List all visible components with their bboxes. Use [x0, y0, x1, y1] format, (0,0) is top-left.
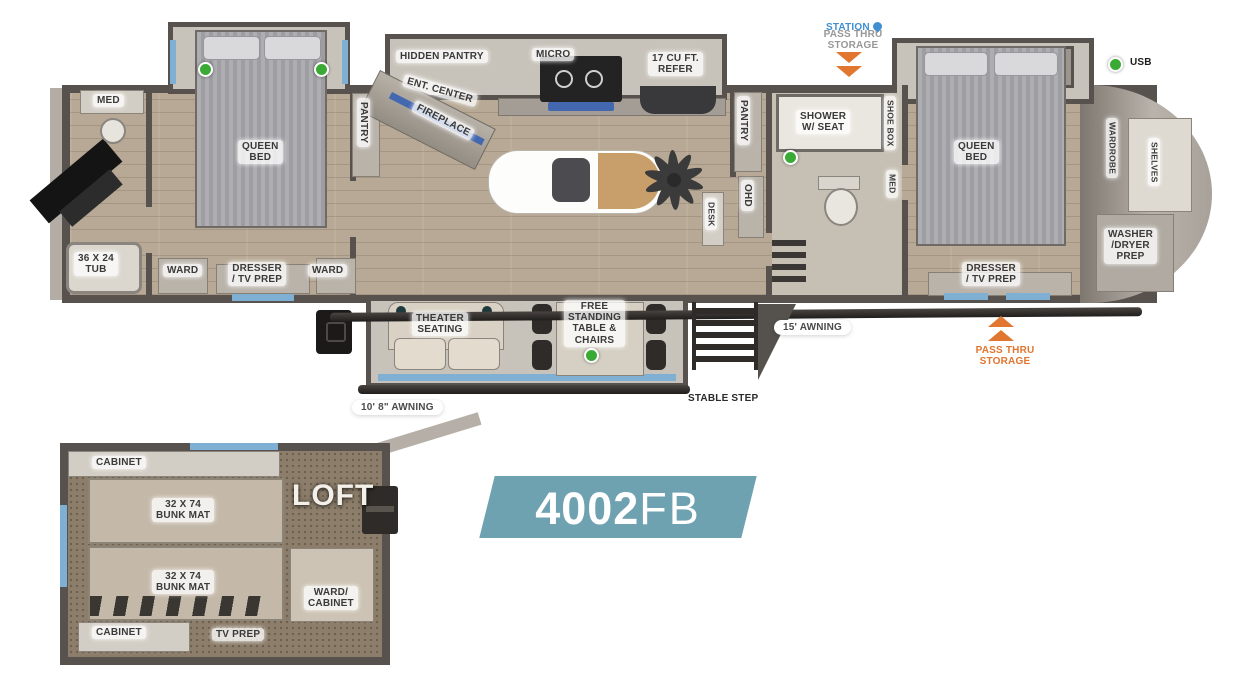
loft-stair-hatch: [90, 596, 262, 616]
toilet-bowl: [824, 188, 858, 226]
label-main-awning: 15' AWNING: [774, 320, 851, 335]
label-rear-pantry: PANTRY: [357, 98, 370, 147]
label-washer-dryer: WASHER /DRYER PREP: [1104, 228, 1157, 264]
bedroom-step-2: [772, 252, 806, 258]
range-cooktop: [540, 56, 622, 102]
pass-thru-down-chevron-2: [836, 66, 862, 77]
step-skirt: [758, 304, 796, 380]
theater-cushion-right: [448, 338, 500, 370]
dining-chair-4: [646, 340, 666, 370]
label-usb: USB: [1126, 56, 1156, 69]
model-number: 4002: [535, 483, 639, 535]
label-rear-ward-right: WARD: [308, 264, 347, 277]
label-pass-thru-right: PASS THRU STORAGE: [956, 344, 1054, 368]
wall-rearbath-lower: [146, 253, 152, 303]
rear-bed-pillow-left: [203, 36, 260, 60]
pass-thru-down-chevron-1: [836, 52, 862, 63]
pass-thru-up-chevron-1: [988, 316, 1014, 327]
rear-awning-bar: [358, 385, 690, 394]
loft-ward-cabinet-box: [290, 548, 374, 622]
island-sink-fixture: [552, 158, 590, 202]
model-badge-text: 4002FB: [487, 478, 749, 540]
shower-entry-light: [783, 150, 798, 165]
label-bunk-bottom: 32 X 74 BUNK MAT: [152, 570, 214, 594]
label-rear-queen: QUEEN BED: [238, 140, 283, 164]
bedroom-step-3: [772, 264, 806, 270]
label-micro: MICRO: [532, 48, 574, 61]
label-shelves: SHELVES: [1148, 138, 1160, 186]
label-refer: 17 CU FT. REFER: [648, 52, 703, 76]
label-loft: LOFT: [288, 478, 378, 514]
label-front-dresser: DRESSER / TV PREP: [962, 262, 1020, 286]
label-dining: FREE STANDING TABLE & CHAIRS: [564, 300, 625, 347]
exterior-box-detail: [326, 322, 346, 342]
front-bed-pillow-left: [924, 52, 988, 76]
label-rear-med: MED: [93, 94, 124, 107]
bedroom-step-4: [772, 276, 806, 282]
label-stable-step: STABLE STEP: [684, 392, 762, 405]
rear-bed-light-left: [198, 62, 213, 77]
rear-slide-window-left: [170, 40, 176, 84]
burner-right: [585, 70, 603, 88]
label-loft-ward-cabinet: WARD/ CABINET: [304, 586, 358, 610]
wall-bath-right-upper: [902, 85, 908, 165]
burner-left: [555, 70, 573, 88]
label-shower: SHOWER W/ SEAT: [796, 110, 850, 134]
step-4: [694, 344, 756, 350]
pass-thru-up-chevron-2: [988, 330, 1014, 341]
floorplan-canvas: MED 36 X 24 TUB QUEEN BED WARD DRESSER /…: [0, 0, 1256, 676]
label-front-queen: QUEEN BED: [954, 140, 999, 164]
step-3: [694, 332, 756, 338]
loft-left-window: [60, 505, 67, 587]
rear-slide-window-right: [342, 40, 348, 84]
label-ohd: OHD: [741, 180, 754, 211]
bedroom-step-1: [772, 240, 806, 246]
rear-bed-light-right: [314, 62, 329, 77]
step-1: [694, 308, 756, 314]
label-loft-cabinet-top: CABINET: [92, 456, 146, 469]
front-window-right: [1006, 293, 1050, 300]
loft-top-window: [190, 443, 278, 450]
dining-chair-2: [532, 340, 552, 370]
label-rear-dresser: DRESSER / TV PREP: [228, 262, 286, 286]
theater-cushion-left: [394, 338, 446, 370]
rear-bed-pillow-right: [264, 36, 321, 60]
label-hidden-pantry: HIDDEN PANTRY: [396, 50, 488, 63]
rear-window-bottom: [232, 294, 294, 301]
label-tv-prep: TV PREP: [212, 628, 264, 641]
label-wardrobe: WARDROBE: [1106, 118, 1118, 178]
step-2: [694, 320, 756, 326]
label-bunk-top: 32 X 74 BUNK MAT: [152, 498, 214, 522]
usb-light: [1108, 57, 1123, 72]
label-mid-med: MED: [886, 170, 898, 198]
label-theater: THEATER SEATING: [412, 312, 468, 336]
front-window-left: [944, 293, 988, 300]
dining-light: [584, 348, 599, 363]
shelves-unit: [1128, 118, 1192, 212]
label-shoe-box: SHOE BOX: [884, 96, 896, 150]
step-5: [694, 356, 756, 362]
label-pass-thru-top: PASS THRU STORAGE: [812, 28, 894, 52]
wall-bath-right-lower: [902, 200, 908, 303]
label-mid-pantry: PANTRY: [737, 96, 750, 145]
label-rear-ward-left: WARD: [163, 264, 202, 277]
wall-rearbath-upper: [146, 85, 152, 207]
dishwasher: [548, 102, 614, 111]
label-rear-awning: 10' 8" AWNING: [352, 400, 443, 415]
front-bed-pillow-right: [994, 52, 1058, 76]
model-trim: FB: [639, 483, 701, 535]
label-desk: DESK: [705, 198, 717, 230]
rear-bath-sink: [100, 118, 126, 144]
label-rear-tub: 36 X 24 TUB: [74, 252, 118, 276]
label-loft-cabinet-bottom: CABINET: [92, 626, 146, 639]
refrigerator: [640, 86, 716, 114]
